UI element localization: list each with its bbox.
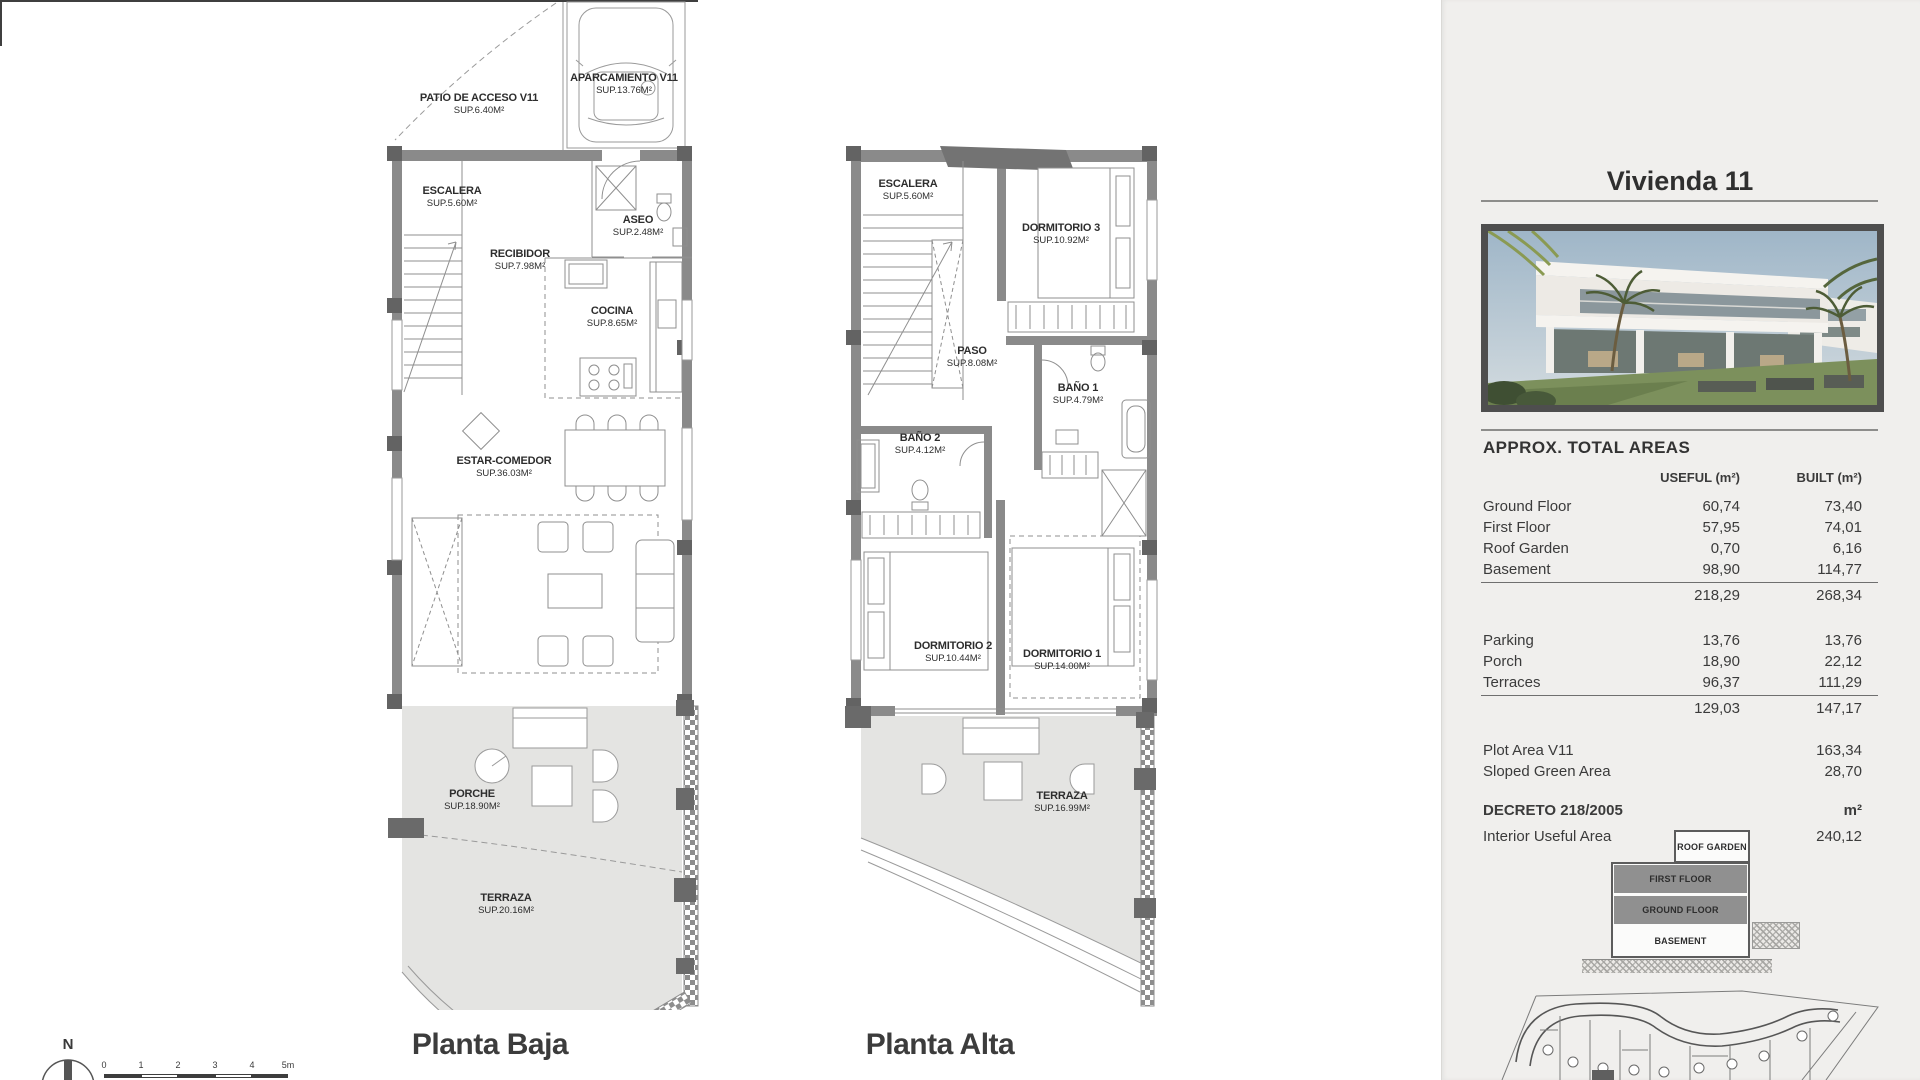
room-label-recibidor: RECIBIDOR SUP.7.98M² — [490, 248, 550, 273]
area-row-plot: Plot Area V11 163,34 — [1483, 740, 1862, 761]
section-divider — [1481, 429, 1878, 431]
interior-useful-row: Interior Useful Area 240,12 — [1483, 826, 1862, 847]
room-label-estar-comedor: ESTAR-COMEDOR SUP.36.03M² — [457, 455, 552, 480]
living-furniture — [538, 522, 674, 666]
scale-bar — [141, 1074, 178, 1078]
dining-table — [565, 415, 665, 501]
scale-bar — [178, 1074, 215, 1078]
room-label-bano2: BAÑO 2 SUP.4.12M² — [895, 432, 946, 457]
scale-tick: 4 — [249, 1060, 254, 1070]
area-row-parking: Parking 13,76 13,76 — [1483, 630, 1862, 651]
stack-level-basement: BASEMENT — [1614, 927, 1747, 955]
room-label-paso: PASO SUP.8.08M² — [947, 345, 998, 370]
area-row-first-floor: First Floor 57,95 74,01 — [1483, 517, 1862, 538]
subtotal-line — [1481, 695, 1878, 696]
stack-level-ground: GROUND FLOOR — [1614, 896, 1747, 924]
room-label-aseo: ASEO SUP.2.48M² — [613, 214, 664, 239]
plan-title-baja: Planta Baja — [412, 1028, 568, 1062]
room-label-bano1: BAÑO 1 SUP.4.79M² — [1053, 382, 1104, 407]
floor-plan-ground — [385, 0, 700, 1010]
terrace-railing-first — [1141, 716, 1154, 1006]
sheet-border-left — [0, 0, 2, 46]
stack-level-first: FIRST FLOOR — [1614, 865, 1747, 893]
scale-tick: 3 — [212, 1060, 217, 1070]
scale-bar — [215, 1074, 252, 1078]
room-label-dormitorio2: DORMITORIO 2 SUP.10.44M² — [914, 640, 992, 665]
room-label-terraza-baja: TERRAZA SUP.20.16M² — [478, 892, 534, 917]
room-label-cocina: COCINA SUP.8.65M² — [587, 305, 638, 330]
area-row-ground-floor: Ground Floor 60,74 73,40 — [1483, 496, 1862, 517]
unit-title: Vivienda 11 — [1607, 166, 1754, 197]
highlighted-unit — [1592, 1070, 1614, 1080]
area-subtotal-2: 129,03 147,17 — [1483, 698, 1862, 719]
scale-tick: 2 — [175, 1060, 180, 1070]
area-row-terraces: Terraces 96,37 111,29 — [1483, 672, 1862, 693]
col-built: BUILT (m²) — [1740, 470, 1862, 485]
building-render — [1481, 224, 1884, 412]
compass-icon — [38, 1056, 98, 1080]
col-useful: USEFUL (m²) — [1633, 470, 1740, 485]
render-scene — [1488, 231, 1877, 405]
area-row-sloped-green: Sloped Green Area 28,70 — [1483, 761, 1862, 782]
scale-tick: 0 — [101, 1060, 106, 1070]
north-label: N — [63, 1036, 74, 1053]
room-label-aparcamiento: APARCAMIENTO V11 SUP.13.76M² — [570, 72, 678, 97]
scale-tick: 1 — [138, 1060, 143, 1070]
areas-header-row: USEFUL (m²) BUILT (m²) — [1483, 470, 1862, 485]
room-label-terraza-alta: TERRAZA SUP.16.99M² — [1034, 790, 1090, 815]
title-underline — [1481, 200, 1878, 202]
area-row-basement: Basement 98,90 114,77 — [1483, 559, 1862, 580]
area-row-roof-garden: Roof Garden 0,70 6,16 — [1483, 538, 1862, 559]
area-subtotal-1: 218,29 268,34 — [1483, 585, 1862, 606]
room-label-porche: PORCHE SUP.18.90M² — [444, 788, 500, 813]
subtotal-line — [1481, 582, 1878, 583]
scale-bar — [252, 1074, 288, 1078]
ground-hatch-right — [1752, 922, 1800, 949]
area-row-porch: Porch 18,90 22,12 — [1483, 651, 1862, 672]
areas-heading: APPROX. TOTAL AREAS — [1483, 438, 1690, 458]
room-label-escalera-baja: ESCALERA SUP.5.60M² — [423, 185, 482, 210]
room-label-patio: PATIO DE ACCESO V11 SUP.6.40M² — [420, 92, 538, 117]
ground-hatch-bottom — [1582, 959, 1772, 973]
site-plan — [1485, 985, 1890, 1080]
room-label-escalera-alta: ESCALERA SUP.5.60M² — [879, 178, 938, 203]
room-label-dormitorio1: DORMITORIO 1 SUP.14.00M² — [1023, 648, 1101, 673]
plan-sheet: { "panel": { "title": "Vivienda 11", "ar… — [0, 0, 1920, 1080]
room-label-dormitorio3: DORMITORIO 3 SUP.10.92M² — [1022, 222, 1100, 247]
scale-bar — [104, 1074, 141, 1078]
roof-access-wall — [940, 146, 1074, 171]
terrace-area — [402, 706, 682, 1010]
decreto-row: DECRETO 218/2005 m² — [1483, 800, 1862, 821]
scale-tick: 5m — [282, 1060, 295, 1070]
plan-title-alta: Planta Alta — [866, 1028, 1014, 1062]
stack-level-roof: ROOF GARDEN — [1676, 832, 1748, 861]
floor-plan-first — [845, 120, 1165, 1010]
stove-icon — [580, 358, 636, 396]
